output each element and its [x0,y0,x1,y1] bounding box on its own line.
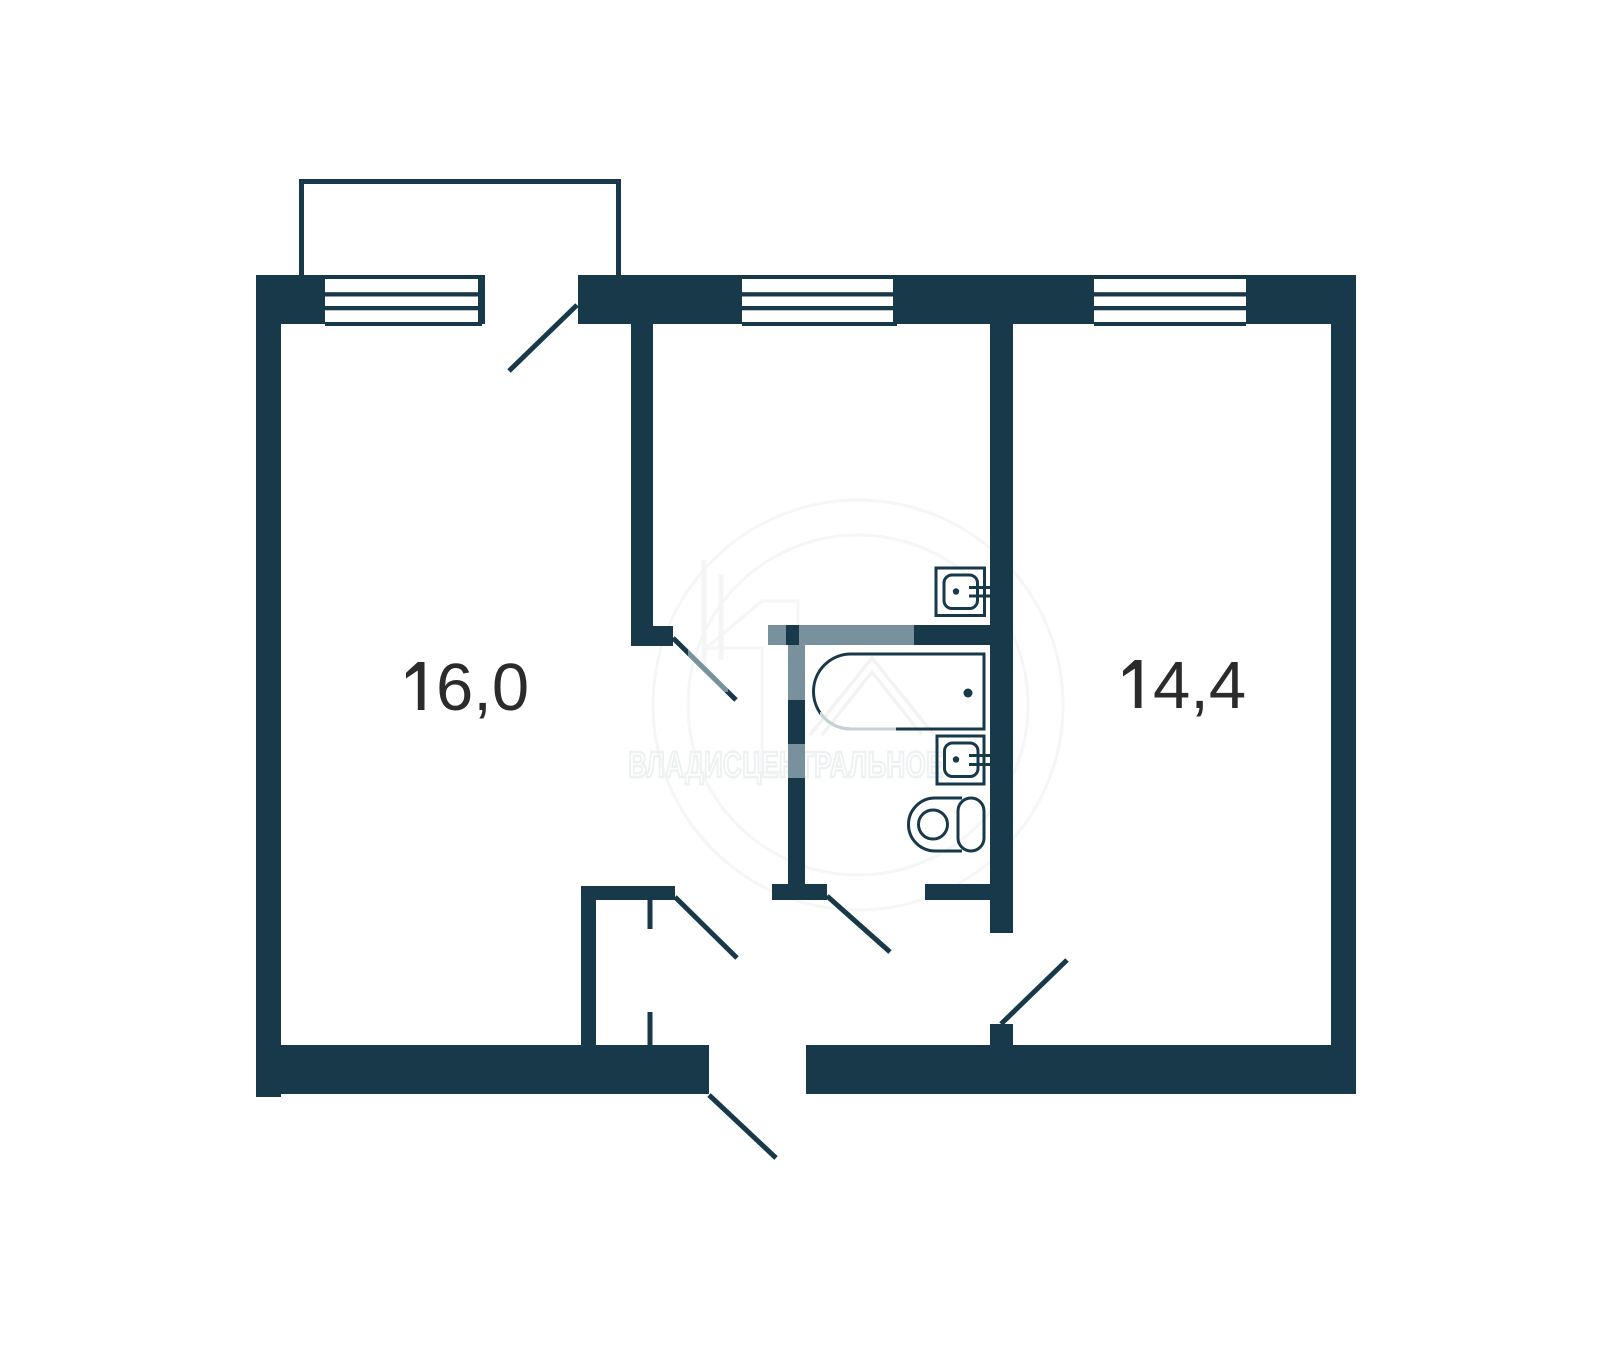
svg-text:ВЛАДИСЦЕНТРАЛЬНОЕ: ВЛАДИСЦЕНТРАЛЬНОЕ [628,745,944,785]
svg-text:6,0: 6,0 [436,650,529,725]
svg-text:4,4: 4,4 [1153,648,1246,723]
